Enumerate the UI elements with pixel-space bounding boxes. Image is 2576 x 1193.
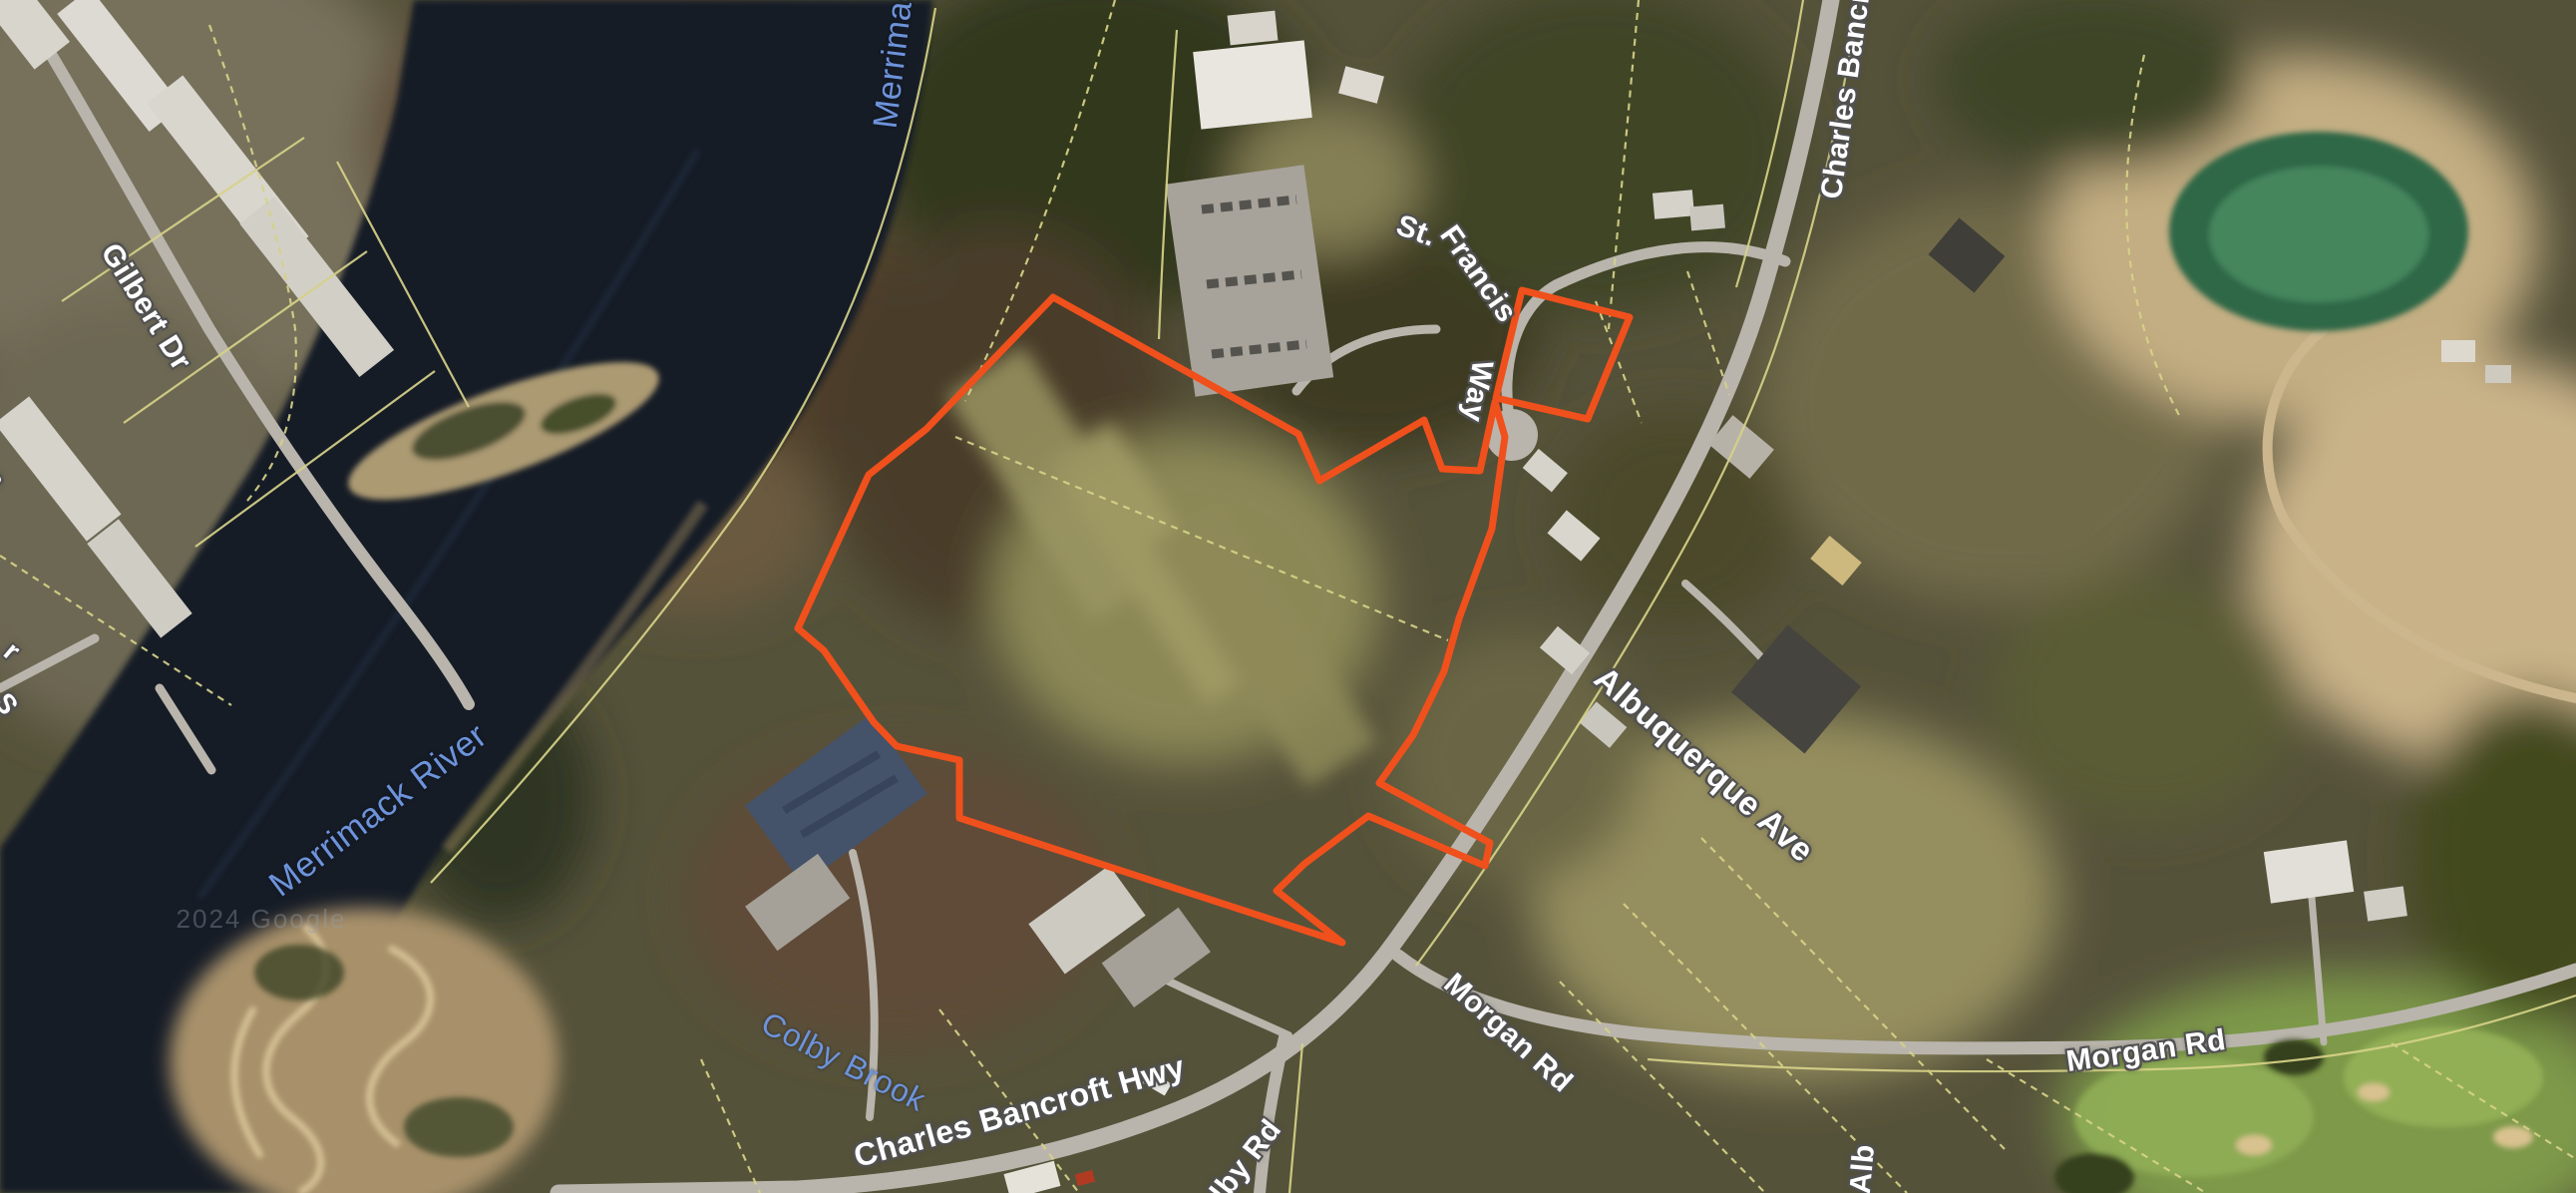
satellite-map[interactable]: Gilbert Dr Merrimack River St. Francis W…	[0, 0, 2576, 1193]
pond	[2169, 132, 2468, 331]
map-canvas	[0, 0, 2576, 1193]
church-building	[1193, 40, 1312, 129]
